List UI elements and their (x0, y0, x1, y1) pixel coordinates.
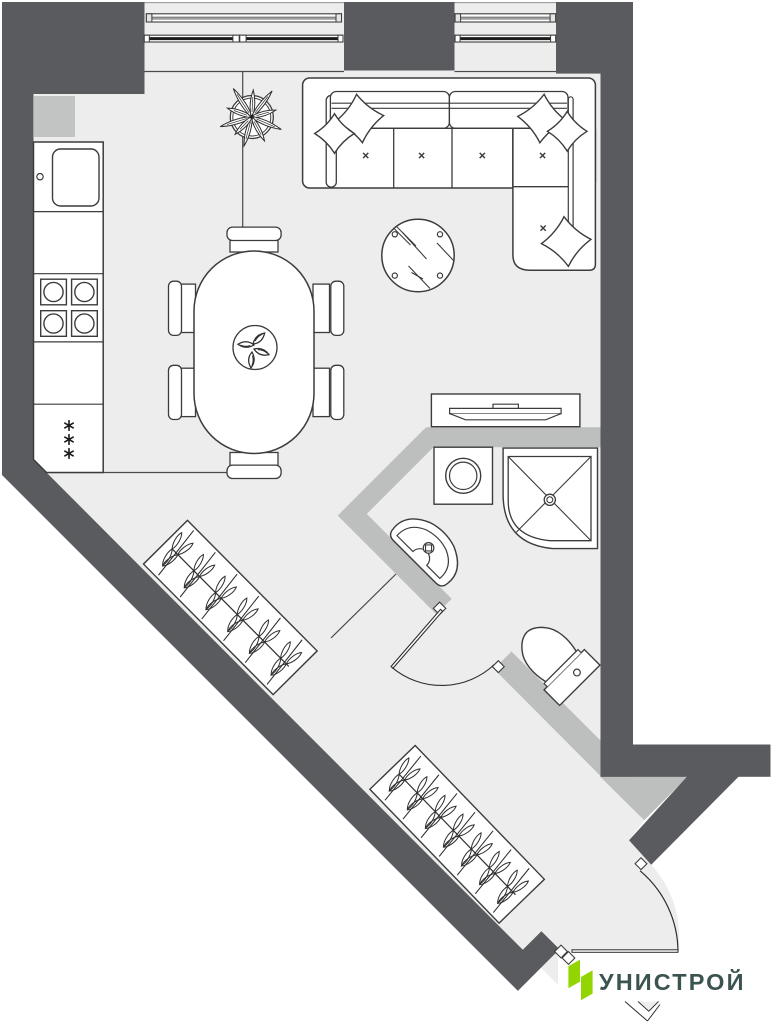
svg-text:УНИСТРОЙ: УНИСТРОЙ (599, 968, 746, 995)
